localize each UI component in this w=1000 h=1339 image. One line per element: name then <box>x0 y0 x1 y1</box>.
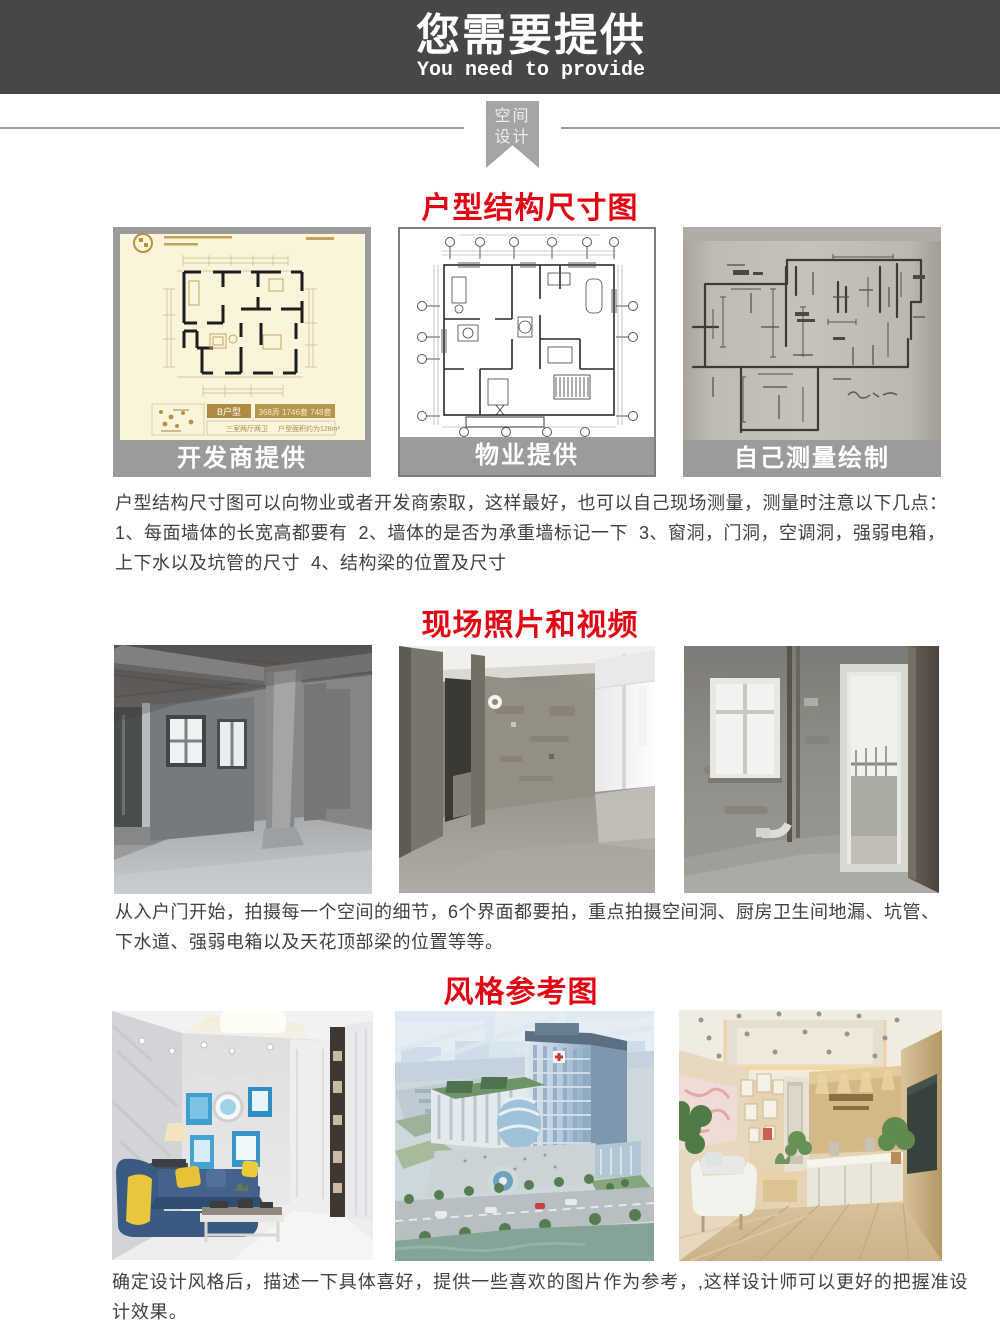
svg-text:户型面积约为128m²: 户型面积约为128m² <box>278 424 341 433</box>
svg-text:368弄 1746套 748套: 368弄 1746套 748套 <box>259 407 332 417</box>
svg-text:三室两厅两卫: 三室两厅两卫 <box>226 424 268 433</box>
svg-text:B户型: B户型 <box>217 406 241 417</box>
